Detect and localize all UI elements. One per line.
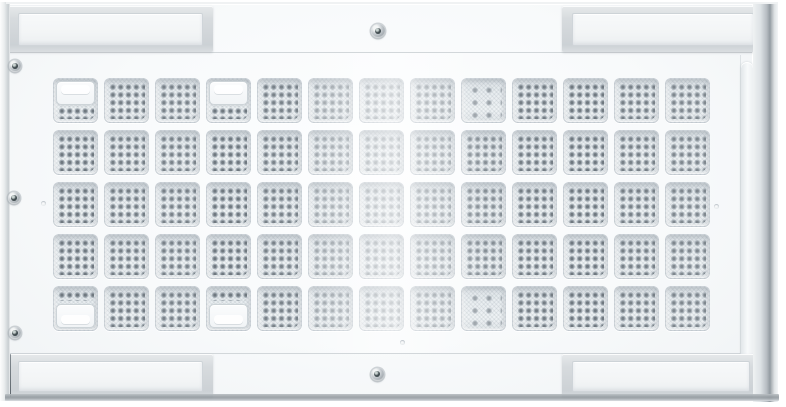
vent-cell-r1c1 [53, 78, 98, 123]
perforation-holes [57, 106, 94, 119]
vent-cell-r5c9 [461, 286, 506, 331]
screw-left-top [9, 60, 21, 72]
vent-cell-r1c13 [665, 78, 710, 123]
perforation-holes [465, 290, 502, 327]
perforation-holes [618, 134, 655, 171]
vent-cell-r5c12 [614, 286, 659, 331]
perforation-holes [618, 82, 655, 119]
vent-cell-r3c2 [104, 182, 149, 227]
vent-cell-r2c1 [53, 130, 98, 175]
vent-cell-r5c8 [410, 286, 455, 331]
vent-cell-r5c4 [206, 286, 251, 331]
perforation-holes [414, 186, 451, 223]
vent-cell-r5c1 [53, 286, 98, 331]
bottom-edge-shadow [5, 394, 779, 401]
perforation-holes [465, 238, 502, 275]
vent-cell-r5c3 [155, 286, 200, 331]
vent-cell-r2c8 [410, 130, 455, 175]
vent-cell-r3c4 [206, 182, 251, 227]
vent-cell-r5c10 [512, 286, 557, 331]
perforation-holes [465, 82, 502, 119]
perforation-holes [669, 134, 706, 171]
vent-cell-r3c10 [512, 182, 557, 227]
vent-cell-r2c5 [257, 130, 302, 175]
perforation-holes [516, 238, 553, 275]
vent-cell-r4c8 [410, 234, 455, 279]
perforation-holes [312, 82, 349, 119]
right-edge-strip [753, 2, 778, 402]
perforation-holes [261, 290, 298, 327]
perforation-holes [567, 82, 604, 119]
vent-cell-r1c8 [410, 78, 455, 123]
perforation-holes [567, 186, 604, 223]
perforation-holes [669, 238, 706, 275]
vent-cell-r2c9 [461, 130, 506, 175]
vent-cell-r4c13 [665, 234, 710, 279]
vent-cell-r3c12 [614, 182, 659, 227]
bracket-bottom-right [562, 354, 760, 398]
perforation-holes [312, 186, 349, 223]
vent-cell-r4c12 [614, 234, 659, 279]
vent-cell-r4c4 [206, 234, 251, 279]
perforation-holes [567, 290, 604, 327]
perforation-holes [210, 290, 247, 301]
vent-cell-r2c13 [665, 130, 710, 175]
vent-cell-r2c4 [206, 130, 251, 175]
vent-cell-r4c3 [155, 234, 200, 279]
surface-dimple-3 [400, 340, 405, 345]
vent-cell-r2c7 [359, 130, 404, 175]
vent-cell-r1c4 [206, 78, 251, 123]
panel-seam-top [8, 52, 752, 53]
perforation-holes [516, 290, 553, 327]
vent-cell-r5c7 [359, 286, 404, 331]
screw-left-bottom [9, 327, 21, 339]
perforation-holes [363, 238, 400, 275]
perforation-holes [57, 238, 94, 275]
vent-cell-r4c2 [104, 234, 149, 279]
perforation-holes [618, 290, 655, 327]
perforation-holes [57, 134, 94, 171]
vent-cell-r1c2 [104, 78, 149, 123]
perforation-holes [159, 290, 196, 327]
vent-cell-r4c7 [359, 234, 404, 279]
perforation-holes [159, 134, 196, 171]
vent-cell-r1c9 [461, 78, 506, 123]
vent-cell-r3c1 [53, 182, 98, 227]
perforation-holes [57, 186, 94, 223]
screw-bottom-center [371, 368, 384, 381]
blank-window-insert [209, 81, 248, 105]
vent-cell-r2c6 [308, 130, 353, 175]
perforation-holes [210, 238, 247, 275]
vent-cell-r3c3 [155, 182, 200, 227]
perforation-holes [669, 82, 706, 119]
perforation-holes [108, 238, 145, 275]
blank-window-insert [56, 81, 95, 105]
panel-photo [0, 0, 786, 407]
perforation-holes [669, 186, 706, 223]
vent-cell-r2c10 [512, 130, 557, 175]
vent-cell-r1c7 [359, 78, 404, 123]
perforation-holes [516, 82, 553, 119]
perforation-holes [210, 134, 247, 171]
vent-cell-r5c2 [104, 286, 149, 331]
perforation-holes [261, 134, 298, 171]
perforation-holes [363, 82, 400, 119]
bracket-bottom-left [8, 354, 213, 398]
vent-cell-r1c11 [563, 78, 608, 123]
vent-cell-r2c12 [614, 130, 659, 175]
vent-cell-r4c5 [257, 234, 302, 279]
perforation-holes [261, 238, 298, 275]
vent-cell-r4c9 [461, 234, 506, 279]
blank-window-insert [56, 304, 95, 328]
perforation-holes [261, 82, 298, 119]
bracket-top-right [562, 6, 764, 52]
perforation-holes [669, 290, 706, 327]
perforation-holes [465, 186, 502, 223]
vent-cell-r1c6 [308, 78, 353, 123]
vent-cell-r3c6 [308, 182, 353, 227]
blank-window-insert [209, 304, 248, 328]
perforation-holes [516, 186, 553, 223]
perforation-holes [567, 238, 604, 275]
perforation-holes [108, 134, 145, 171]
vent-cell-r2c2 [104, 130, 149, 175]
perforation-holes [261, 186, 298, 223]
vent-cell-r4c10 [512, 234, 557, 279]
perforation-holes [108, 186, 145, 223]
vent-cell-r5c11 [563, 286, 608, 331]
vent-cell-r4c1 [53, 234, 98, 279]
surface-dimple-1 [41, 201, 46, 206]
perforation-holes [618, 238, 655, 275]
perforation-holes [465, 134, 502, 171]
perforation-holes [618, 186, 655, 223]
vent-cell-r1c10 [512, 78, 557, 123]
vent-cell-r3c8 [410, 182, 455, 227]
perforation-holes [312, 134, 349, 171]
vent-cell-r2c3 [155, 130, 200, 175]
perforation-holes [414, 238, 451, 275]
perforation-holes [363, 290, 400, 327]
vent-cell-r1c5 [257, 78, 302, 123]
vent-cell-r3c7 [359, 182, 404, 227]
screw-top-center [371, 24, 385, 38]
vent-cell-r4c6 [308, 234, 353, 279]
bracket-bottom-left-inner-plate [18, 361, 203, 392]
surface-dimple-2 [714, 204, 719, 209]
vent-cell-r3c11 [563, 182, 608, 227]
perforation-holes [414, 82, 451, 119]
perforation-holes [363, 134, 400, 171]
vent-cell-r1c12 [614, 78, 659, 123]
perforation-holes [210, 106, 247, 119]
vent-cell-r5c6 [308, 286, 353, 331]
perforation-holes [567, 134, 604, 171]
perforation-holes [108, 82, 145, 119]
perforation-holes [159, 82, 196, 119]
perforation-holes [363, 186, 400, 223]
bracket-top-left [8, 6, 213, 52]
perforation-holes [210, 186, 247, 223]
vent-cell-r1c3 [155, 78, 200, 123]
perforation-holes [414, 290, 451, 327]
vent-cell-r3c13 [665, 182, 710, 227]
perforation-holes [108, 290, 145, 327]
vent-cell-r5c13 [665, 286, 710, 331]
perforation-holes [414, 134, 451, 171]
perforation-holes [159, 186, 196, 223]
perforation-holes [57, 290, 94, 301]
vent-cell-r5c5 [257, 286, 302, 331]
bracket-top-right-inner-plate [572, 13, 754, 46]
bracket-bottom-right-inner-plate [572, 361, 750, 392]
vent-cell-r3c9 [461, 182, 506, 227]
vent-cell-r2c11 [563, 130, 608, 175]
top-edge-highlight [6, 2, 778, 4]
perforation-holes [312, 290, 349, 327]
perforation-holes [159, 238, 196, 275]
perforation-holes [312, 238, 349, 275]
vent-cell-r3c5 [257, 182, 302, 227]
right-fold-channel [741, 62, 753, 392]
vent-cell-r4c11 [563, 234, 608, 279]
bracket-top-left-inner-plate [18, 13, 203, 46]
perforation-holes [516, 134, 553, 171]
screw-left-middle [8, 192, 20, 204]
